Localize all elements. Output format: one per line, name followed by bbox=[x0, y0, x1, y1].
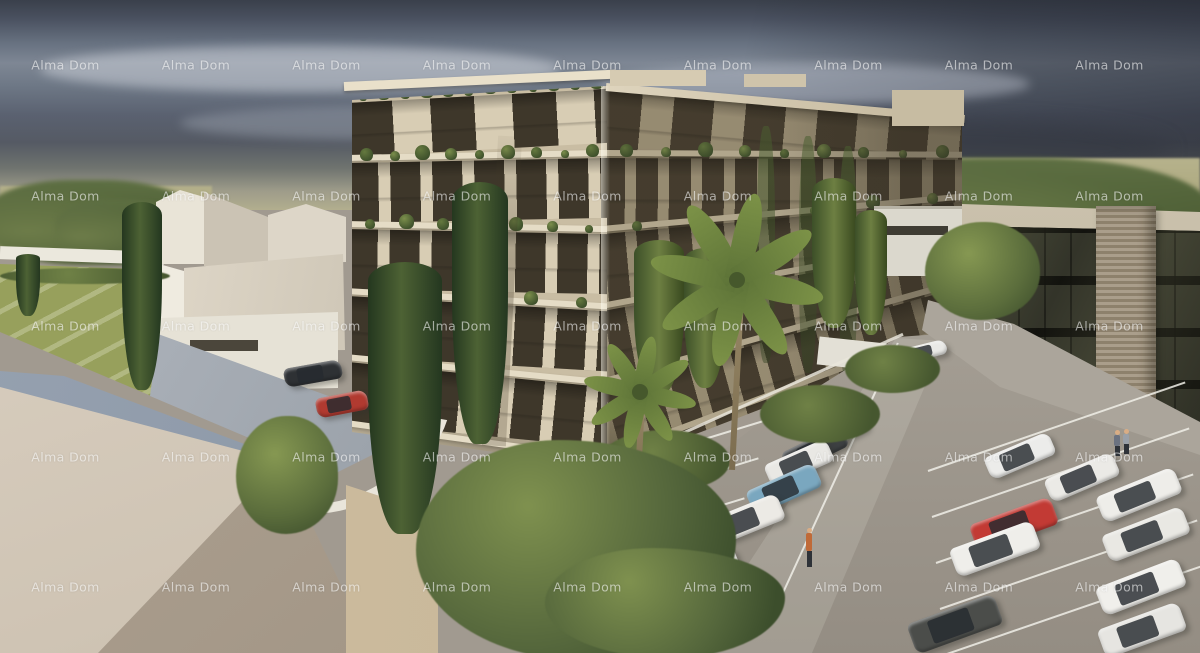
watermark-text: Alma Dom bbox=[292, 449, 360, 464]
watermark-text: Alma Dom bbox=[292, 188, 360, 203]
watermark-text: Alma Dom bbox=[162, 188, 230, 203]
watermark-text: Alma Dom bbox=[553, 580, 621, 595]
watermark-text: Alma Dom bbox=[1075, 580, 1143, 595]
watermark-text: Alma Dom bbox=[945, 449, 1013, 464]
watermark-text: Alma Dom bbox=[31, 449, 99, 464]
watermark-text: Alma Dom bbox=[292, 319, 360, 334]
watermark-text: Alma Dom bbox=[162, 449, 230, 464]
watermark-text: Alma Dom bbox=[684, 580, 752, 595]
watermark-text: Alma Dom bbox=[684, 319, 752, 334]
watermark-text: Alma Dom bbox=[31, 58, 99, 73]
watermark-text: Alma Dom bbox=[684, 188, 752, 203]
watermark-text: Alma Dom bbox=[814, 188, 882, 203]
watermark-text: Alma Dom bbox=[162, 580, 230, 595]
watermark-text: Alma Dom bbox=[292, 58, 360, 73]
watermark-text: Alma Dom bbox=[1075, 449, 1143, 464]
watermark-text: Alma Dom bbox=[684, 58, 752, 73]
watermark-text: Alma Dom bbox=[814, 319, 882, 334]
watermark-text: Alma Dom bbox=[684, 449, 752, 464]
watermark-text: Alma Dom bbox=[553, 188, 621, 203]
watermark-text: Alma Dom bbox=[1075, 188, 1143, 203]
watermark-text: Alma Dom bbox=[31, 188, 99, 203]
watermark-text: Alma Dom bbox=[553, 319, 621, 334]
watermark-text: Alma Dom bbox=[1075, 319, 1143, 334]
watermark-text: Alma Dom bbox=[1075, 58, 1143, 73]
watermark-text: Alma Dom bbox=[292, 580, 360, 595]
watermark-text: Alma Dom bbox=[553, 449, 621, 464]
watermark-text: Alma Dom bbox=[423, 449, 491, 464]
watermark-text: Alma Dom bbox=[162, 58, 230, 73]
architectural-rendering: Alma DomAlma DomAlma DomAlma DomAlma Dom… bbox=[0, 0, 1200, 653]
watermark-text: Alma Dom bbox=[945, 319, 1013, 334]
watermark-text: Alma Dom bbox=[31, 580, 99, 595]
watermark-text: Alma Dom bbox=[423, 580, 491, 595]
watermark-text: Alma Dom bbox=[162, 319, 230, 334]
watermark-text: Alma Dom bbox=[945, 188, 1013, 203]
watermark-text: Alma Dom bbox=[31, 319, 99, 334]
watermark-text: Alma Dom bbox=[814, 449, 882, 464]
watermark-text: Alma Dom bbox=[945, 58, 1013, 73]
watermark-text: Alma Dom bbox=[945, 580, 1013, 595]
watermark-layer: Alma DomAlma DomAlma DomAlma DomAlma Dom… bbox=[0, 0, 1200, 653]
watermark-text: Alma Dom bbox=[423, 319, 491, 334]
watermark-text: Alma Dom bbox=[814, 580, 882, 595]
watermark-text: Alma Dom bbox=[553, 58, 621, 73]
watermark-text: Alma Dom bbox=[423, 58, 491, 73]
watermark-text: Alma Dom bbox=[423, 188, 491, 203]
watermark-text: Alma Dom bbox=[814, 58, 882, 73]
